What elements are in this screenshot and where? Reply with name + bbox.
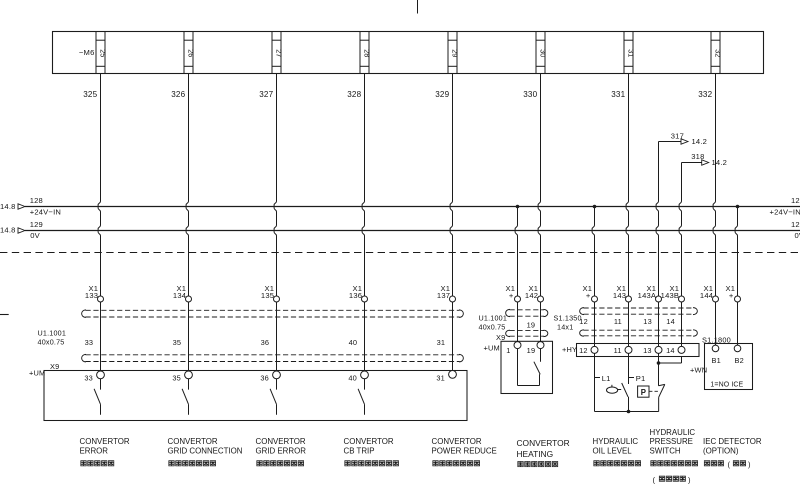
svg-text:OIL LEVEL: OIL LEVEL bbox=[593, 447, 633, 456]
svg-text:PRESSURE: PRESSURE bbox=[650, 437, 693, 446]
svg-text:1: 1 bbox=[506, 346, 510, 355]
svg-text:B2: B2 bbox=[735, 356, 744, 365]
svg-text:CONVERTOR: CONVERTOR bbox=[80, 437, 130, 446]
svg-text:27: 27 bbox=[275, 49, 284, 57]
svg-text:129: 129 bbox=[791, 220, 800, 229]
svg-text:144: 144 bbox=[700, 291, 713, 300]
svg-text:137: 137 bbox=[437, 291, 450, 300]
svg-text:CB TRIP: CB TRIP bbox=[344, 447, 375, 456]
svg-text:143B: 143B bbox=[661, 291, 680, 300]
svg-text:35: 35 bbox=[172, 374, 181, 383]
svg-text:14: 14 bbox=[666, 346, 675, 355]
svg-text:(OPTION): (OPTION) bbox=[703, 447, 739, 456]
svg-text:14x1: 14x1 bbox=[557, 322, 573, 331]
svg-text:13: 13 bbox=[643, 346, 652, 355]
svg-text:HYDRAULIC: HYDRAULIC bbox=[650, 428, 696, 437]
svg-text:GRID CONNECTION: GRID CONNECTION bbox=[168, 447, 243, 456]
svg-text:CONVERTOR: CONVERTOR bbox=[256, 437, 306, 446]
svg-text:31: 31 bbox=[627, 49, 636, 57]
svg-text:(: ( bbox=[728, 460, 731, 469]
svg-text:28: 28 bbox=[363, 49, 372, 57]
svg-text:134: 134 bbox=[173, 291, 186, 300]
svg-text:330: 330 bbox=[523, 90, 537, 99]
svg-text:0V: 0V bbox=[30, 231, 40, 240]
svg-text:HEATING: HEATING bbox=[517, 449, 554, 459]
svg-text:14: 14 bbox=[666, 317, 675, 326]
svg-text:13: 13 bbox=[643, 317, 652, 326]
svg-text:19: 19 bbox=[527, 320, 536, 329]
svg-text:135: 135 bbox=[261, 291, 274, 300]
svg-text:11: 11 bbox=[614, 317, 622, 326]
svg-text:+24V−IN: +24V−IN bbox=[770, 208, 800, 217]
svg-text:35: 35 bbox=[173, 338, 182, 347]
svg-text:19: 19 bbox=[527, 346, 536, 355]
svg-text:40x0.75: 40x0.75 bbox=[479, 322, 506, 331]
svg-text:33: 33 bbox=[84, 374, 93, 383]
svg-text:326: 326 bbox=[171, 90, 185, 99]
svg-text:40x0.75: 40x0.75 bbox=[38, 338, 65, 347]
svg-text:POWER REDUCE: POWER REDUCE bbox=[432, 447, 497, 456]
svg-text:128: 128 bbox=[30, 196, 43, 205]
svg-text:332: 332 bbox=[698, 90, 712, 99]
svg-text:128: 128 bbox=[791, 196, 800, 205]
svg-text:143: 143 bbox=[613, 291, 626, 300]
svg-text:+UM: +UM bbox=[29, 369, 45, 378]
svg-text:31: 31 bbox=[436, 374, 445, 383]
svg-text:HYDRAULIC: HYDRAULIC bbox=[593, 437, 639, 446]
svg-text:S1.1350: S1.1350 bbox=[554, 314, 582, 323]
svg-text:P: P bbox=[641, 388, 646, 397]
svg-text:CONVERTOR: CONVERTOR bbox=[432, 437, 482, 446]
svg-text:331: 331 bbox=[611, 90, 625, 99]
svg-text:+HY: +HY bbox=[562, 345, 577, 354]
svg-text:14.2: 14.2 bbox=[712, 158, 728, 167]
svg-text:33: 33 bbox=[85, 338, 94, 347]
svg-text:142: 142 bbox=[525, 291, 538, 300]
svg-text:30: 30 bbox=[539, 49, 548, 57]
svg-text:25: 25 bbox=[99, 49, 108, 57]
svg-text:+24V−IN: +24V−IN bbox=[30, 208, 61, 217]
svg-text:12: 12 bbox=[579, 317, 588, 326]
svg-text:GRID ERROR: GRID ERROR bbox=[256, 447, 307, 456]
svg-text:−M6: −M6 bbox=[79, 48, 95, 57]
svg-text:31: 31 bbox=[437, 338, 446, 347]
svg-text:+WN: +WN bbox=[690, 366, 707, 375]
svg-text:327: 327 bbox=[259, 90, 273, 99]
svg-text:29: 29 bbox=[451, 49, 460, 57]
svg-text:40: 40 bbox=[349, 338, 358, 347]
svg-text:0V: 0V bbox=[795, 231, 800, 240]
svg-text:32: 32 bbox=[714, 49, 723, 57]
svg-text:36: 36 bbox=[260, 374, 269, 383]
svg-text:SWITCH: SWITCH bbox=[650, 447, 681, 456]
svg-text:X9: X9 bbox=[50, 362, 59, 371]
svg-text:S1.1800: S1.1800 bbox=[702, 336, 731, 345]
svg-text:+UM: +UM bbox=[484, 344, 500, 353]
svg-text:P1: P1 bbox=[636, 374, 646, 383]
svg-text:12: 12 bbox=[579, 346, 588, 355]
svg-text:CONVERTOR: CONVERTOR bbox=[344, 437, 394, 446]
svg-text:U1.1001: U1.1001 bbox=[479, 314, 508, 323]
svg-text:26: 26 bbox=[187, 49, 196, 57]
svg-text:329: 329 bbox=[435, 90, 449, 99]
svg-text:328: 328 bbox=[347, 90, 361, 99]
svg-text:U1.1001: U1.1001 bbox=[38, 328, 67, 337]
svg-text:L1: L1 bbox=[602, 374, 611, 383]
svg-text:129: 129 bbox=[30, 220, 43, 229]
svg-text:+: + bbox=[509, 291, 514, 300]
svg-text:IEC DETECTOR: IEC DETECTOR bbox=[703, 437, 762, 446]
svg-text:325: 325 bbox=[83, 90, 97, 99]
svg-text:): ) bbox=[688, 476, 691, 485]
svg-text:318: 318 bbox=[691, 152, 704, 161]
svg-text:CONVERTOR: CONVERTOR bbox=[168, 437, 218, 446]
svg-text:14.8: 14.8 bbox=[0, 202, 16, 211]
svg-text:X9: X9 bbox=[496, 333, 505, 342]
svg-text:36: 36 bbox=[261, 338, 270, 347]
svg-text:40: 40 bbox=[348, 374, 357, 383]
svg-text:14.8: 14.8 bbox=[0, 226, 16, 235]
svg-text:1=NO ICE: 1=NO ICE bbox=[710, 382, 743, 389]
svg-text:): ) bbox=[748, 460, 751, 469]
svg-text:143A: 143A bbox=[638, 291, 657, 300]
svg-text:(: ( bbox=[653, 476, 656, 485]
svg-text:136: 136 bbox=[349, 291, 362, 300]
svg-text:CONVERTOR: CONVERTOR bbox=[517, 438, 570, 448]
svg-text:ERROR: ERROR bbox=[80, 447, 109, 456]
svg-text:B1: B1 bbox=[712, 356, 721, 365]
svg-text:+: + bbox=[586, 291, 591, 300]
svg-text:+: + bbox=[729, 291, 734, 300]
svg-text:317: 317 bbox=[671, 132, 684, 141]
svg-text:14.2: 14.2 bbox=[692, 137, 708, 146]
svg-text:133: 133 bbox=[85, 291, 98, 300]
svg-text:11: 11 bbox=[614, 346, 622, 355]
